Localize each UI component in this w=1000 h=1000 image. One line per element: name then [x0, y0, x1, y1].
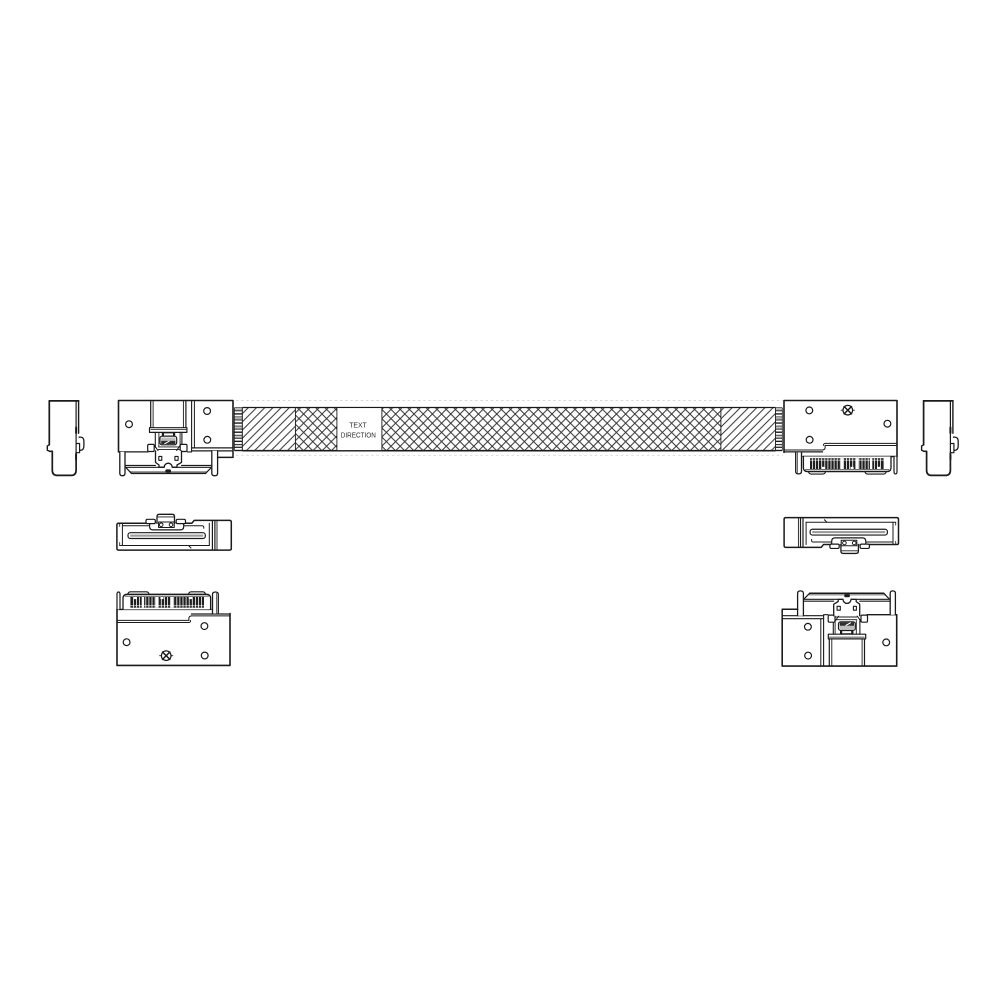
svg-text:DIRECTION: DIRECTION	[341, 430, 376, 439]
svg-text:TEXT: TEXT	[349, 421, 367, 430]
